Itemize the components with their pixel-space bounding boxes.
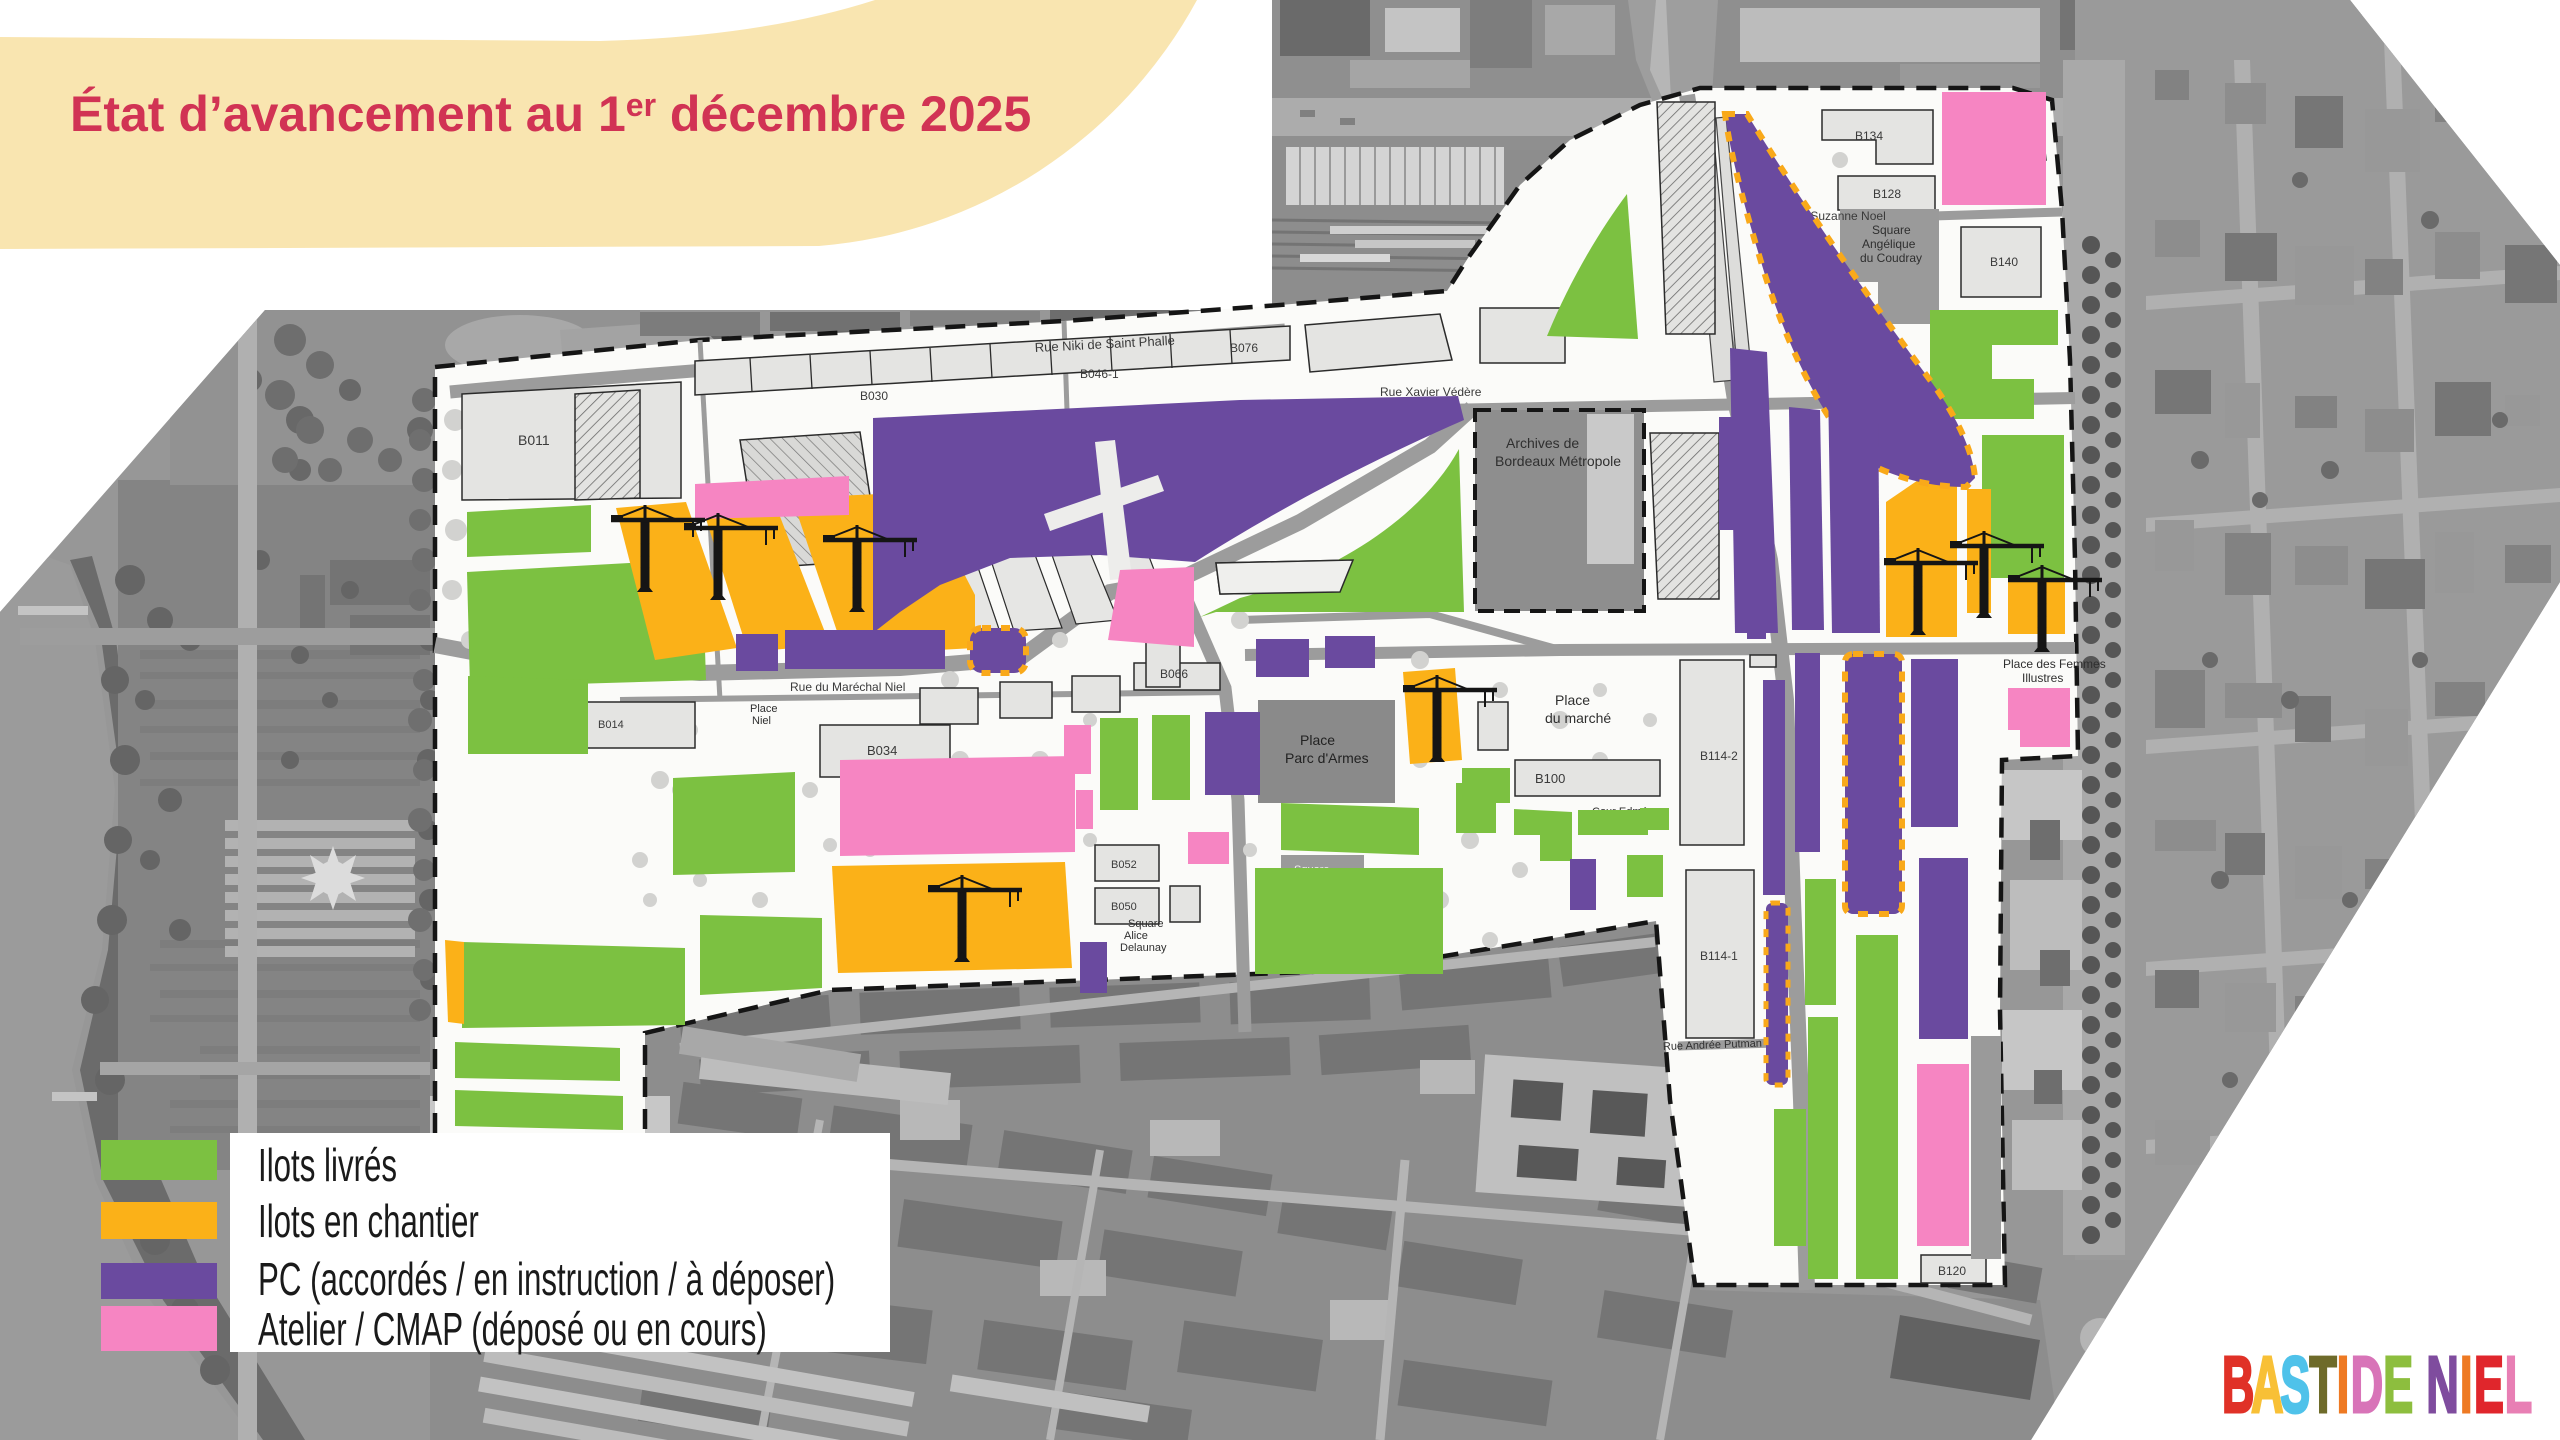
svg-text:du marché: du marché <box>1545 710 1611 726</box>
svg-text:S: S <box>2280 1339 2310 1429</box>
svg-text:Archives de: Archives de <box>1506 435 1579 451</box>
svg-text:Place des Femmes: Place des Femmes <box>2003 657 2106 671</box>
svg-text:Parc d'Armes: Parc d'Armes <box>1285 750 1369 766</box>
svg-text:T: T <box>2309 1339 2336 1429</box>
svg-text:Rue du Maréchal Niel: Rue du Maréchal Niel <box>790 680 905 694</box>
svg-text:Bordeaux Métropole: Bordeaux Métropole <box>1495 453 1621 469</box>
svg-text:E: E <box>2474 1339 2504 1429</box>
svg-text:B052: B052 <box>1111 859 1137 871</box>
svg-text:du Coudray: du Coudray <box>1860 251 1922 265</box>
svg-text:B076: B076 <box>1230 341 1258 355</box>
svg-text:Place: Place <box>750 703 778 715</box>
svg-text:Ilots livrés: Ilots livrés <box>258 1140 397 1191</box>
svg-text:B128: B128 <box>1873 187 1901 201</box>
svg-text:PC (accordés / en instruction: PC (accordés / en instruction / à dépose… <box>258 1254 835 1305</box>
svg-text:B046-1: B046-1 <box>1080 367 1119 381</box>
svg-text:Alice: Alice <box>1124 930 1148 942</box>
svg-text:Atelier / CMAP (déposé ou en c: Atelier / CMAP (déposé ou en cours) <box>258 1304 767 1355</box>
svg-text:B066: B066 <box>1160 667 1188 681</box>
svg-text:Ilots en chantier: Ilots en chantier <box>258 1196 479 1247</box>
svg-text:B034: B034 <box>867 743 897 758</box>
svg-text:E: E <box>2383 1339 2413 1429</box>
svg-text:I: I <box>2337 1339 2349 1429</box>
svg-text:Place: Place <box>1555 692 1590 708</box>
svg-text:B: B <box>2222 1339 2254 1429</box>
svg-text:Illustres: Illustres <box>2022 671 2063 685</box>
svg-text:B011: B011 <box>518 432 550 448</box>
svg-text:Square: Square <box>1872 223 1911 237</box>
svg-text:L: L <box>2505 1339 2532 1429</box>
svg-text:B140: B140 <box>1990 255 2018 269</box>
svg-text:D: D <box>2351 1339 2383 1429</box>
svg-text:Square: Square <box>1128 918 1163 930</box>
svg-text:A: A <box>2251 1339 2283 1429</box>
svg-text:I: I <box>2460 1339 2472 1429</box>
svg-text:B014: B014 <box>598 719 624 731</box>
svg-text:État d’avancement au 1er décem: État d’avancement au 1er décembre 2025 <box>70 86 1031 142</box>
svg-text:B050: B050 <box>1111 901 1137 913</box>
svg-text:B114-1: B114-1 <box>1700 949 1738 963</box>
svg-text:B114-2: B114-2 <box>1700 749 1738 763</box>
svg-text:Angélique: Angélique <box>1862 237 1916 251</box>
svg-text:B120: B120 <box>1938 1264 1966 1278</box>
svg-text:Delaunay: Delaunay <box>1120 942 1167 954</box>
svg-text:B134: B134 <box>1855 129 1883 143</box>
svg-text:N: N <box>2426 1339 2458 1429</box>
svg-text:Niel: Niel <box>752 715 771 727</box>
svg-text:B100: B100 <box>1535 771 1565 786</box>
svg-text:B030: B030 <box>860 389 888 403</box>
svg-text:Place: Place <box>1300 732 1335 748</box>
